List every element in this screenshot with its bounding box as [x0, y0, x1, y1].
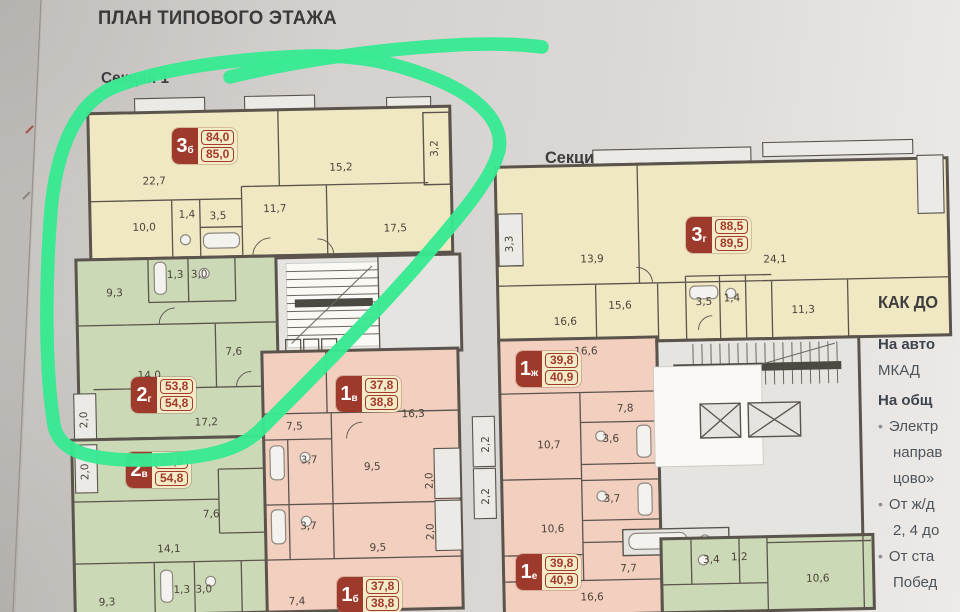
info-line: Побед [878, 569, 960, 595]
info-line: направ [878, 439, 960, 465]
info-line: На общ [878, 387, 960, 413]
info-heading: КАК ДО [878, 292, 957, 313]
bullet-icon: • [878, 548, 883, 564]
info-line: МКАД [878, 357, 960, 383]
bullet-icon: • [878, 418, 883, 434]
info-line: •Электр [878, 413, 960, 439]
info-line: На авто [878, 331, 960, 357]
bullet-icon: • [878, 496, 883, 512]
info-lines: На автоМКАДНа общ•Электрнаправцово»•От ж… [878, 331, 960, 595]
info-line: •От ста [878, 543, 960, 569]
photo-of-floor-plan-page: ПЛАН ТИПОВОГО ЭТАЖА Секция 1 Секция 3 [0, 0, 960, 612]
info-line: •От ж/д [878, 491, 960, 517]
info-line: цово» [878, 465, 960, 491]
green-marker-annotation [0, 0, 960, 612]
info-panel: КАК ДО На автоМКАДНа общ•Электрнаправцов… [878, 292, 960, 612]
marker-loop [47, 56, 500, 460]
info-line: 2, 4 до [878, 517, 960, 543]
